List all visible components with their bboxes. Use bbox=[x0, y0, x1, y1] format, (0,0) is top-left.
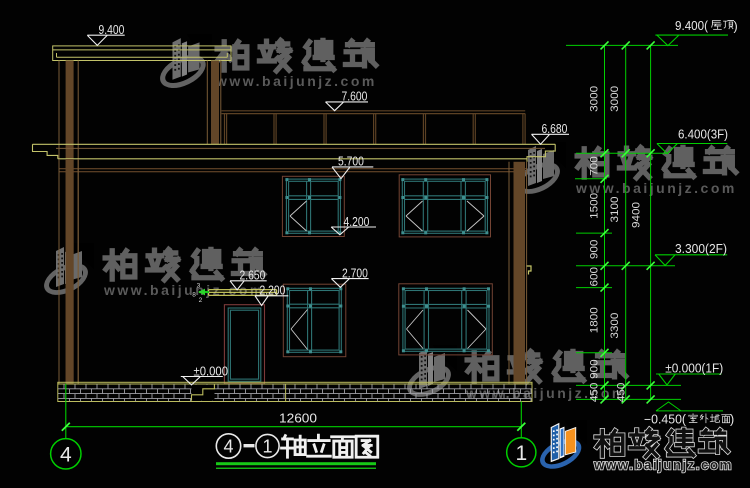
svg-text:2.700: 2.700 bbox=[342, 266, 368, 280]
svg-text:6.400(3F): 6.400(3F) bbox=[678, 127, 728, 141]
svg-text:9.400(: 9.400( bbox=[675, 19, 709, 33]
svg-text:3100: 3100 bbox=[609, 197, 621, 223]
svg-text:2: 2 bbox=[199, 297, 203, 304]
svg-text:700: 700 bbox=[588, 156, 600, 176]
svg-text:2.200: 2.200 bbox=[260, 283, 286, 297]
svg-text:900: 900 bbox=[588, 359, 600, 379]
svg-text:3000: 3000 bbox=[588, 86, 600, 112]
svg-text:7.600: 7.600 bbox=[342, 90, 368, 104]
svg-text:4: 4 bbox=[223, 437, 233, 457]
svg-text:): ) bbox=[734, 20, 738, 34]
svg-text:2.650: 2.650 bbox=[240, 269, 266, 283]
svg-text:450: 450 bbox=[588, 383, 600, 403]
svg-text:900: 900 bbox=[588, 240, 600, 260]
svg-text:1: 1 bbox=[262, 437, 272, 457]
svg-text:3300: 3300 bbox=[609, 313, 621, 339]
svg-text:600: 600 bbox=[588, 267, 600, 287]
svg-text:www.baijunjz.com: www.baijunjz.com bbox=[215, 73, 377, 89]
svg-text:): ) bbox=[730, 412, 734, 426]
svg-text:9.400: 9.400 bbox=[99, 23, 125, 37]
svg-text:9400: 9400 bbox=[631, 202, 643, 228]
svg-text:−0.450(: −0.450( bbox=[644, 412, 687, 426]
svg-text:±0.000: ±0.000 bbox=[194, 364, 229, 378]
svg-text:3: 3 bbox=[197, 283, 201, 290]
svg-text:4.200: 4.200 bbox=[344, 215, 370, 229]
svg-text:6.680: 6.680 bbox=[542, 122, 568, 136]
svg-text:www.baijunjz.com: www.baijunjz.com bbox=[593, 458, 733, 473]
svg-text:1800: 1800 bbox=[588, 307, 600, 333]
svg-text:3.300(2F): 3.300(2F) bbox=[675, 242, 727, 256]
svg-text:12600: 12600 bbox=[279, 411, 317, 426]
svg-text:1: 1 bbox=[515, 442, 527, 465]
svg-text:8: 8 bbox=[192, 291, 196, 298]
svg-text:450: 450 bbox=[616, 383, 628, 403]
svg-text:1500: 1500 bbox=[588, 193, 600, 219]
svg-text:3000: 3000 bbox=[609, 86, 621, 112]
svg-text:±0.000(1F): ±0.000(1F) bbox=[665, 361, 723, 375]
svg-text:4: 4 bbox=[60, 443, 72, 466]
svg-text:5.700: 5.700 bbox=[338, 155, 364, 169]
